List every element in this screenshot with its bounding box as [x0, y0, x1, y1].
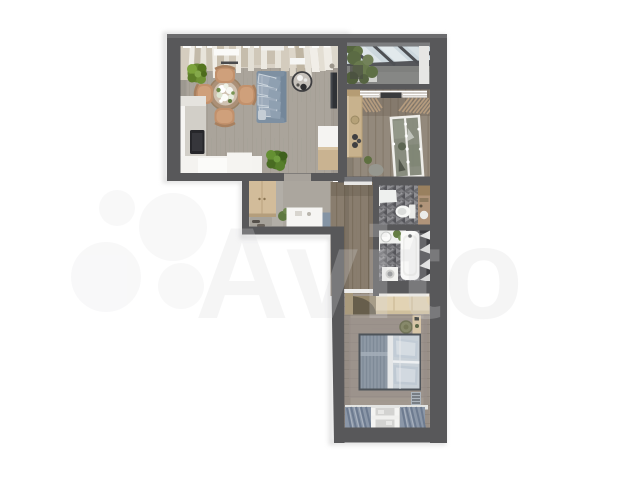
svg-text:Avito: Avito [195, 200, 525, 346]
